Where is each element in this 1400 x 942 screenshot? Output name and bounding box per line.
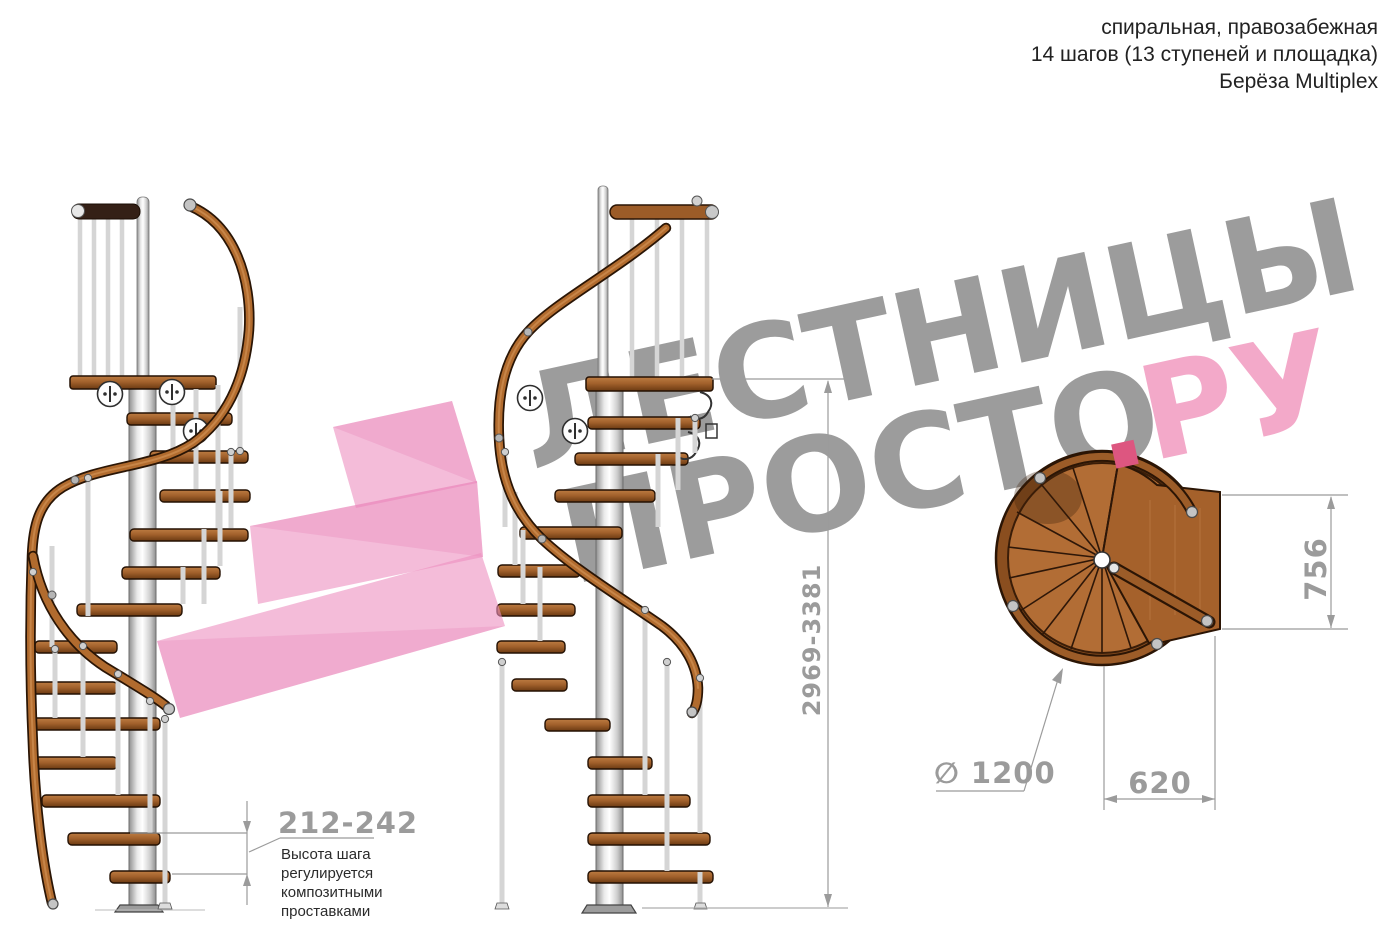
spec-steps: 14 шагов (13 ступеней и площадка) [1031,41,1378,68]
spec-type: спиральная, правозабежная [1031,14,1378,41]
dimension-total-height: 2969-3381 [798,560,826,720]
mount-discs [518,386,588,444]
dimension-step-height: 212-242 [278,806,418,840]
center-staircase-side-view [495,186,719,913]
dimension-step-width: 620 [1120,766,1200,800]
left-staircase-side-view [29,197,250,912]
dimension-diameter: ∅ 1200 [934,756,1056,790]
step-height-note: Высота шага регулируется композитными пр… [281,845,383,921]
dimension-landing-depth: 756 [1299,489,1333,649]
landing-balusters [80,217,122,376]
spec-material: Берёза Multiplex [1031,68,1378,95]
pink-ribbon-watermark [157,401,505,718]
technical-drawing-page: ЛЕСТНИЦЫ ПРОСТО [0,0,1400,942]
spec-header: спиральная, правозабежная 14 шагов (13 с… [1031,14,1378,95]
